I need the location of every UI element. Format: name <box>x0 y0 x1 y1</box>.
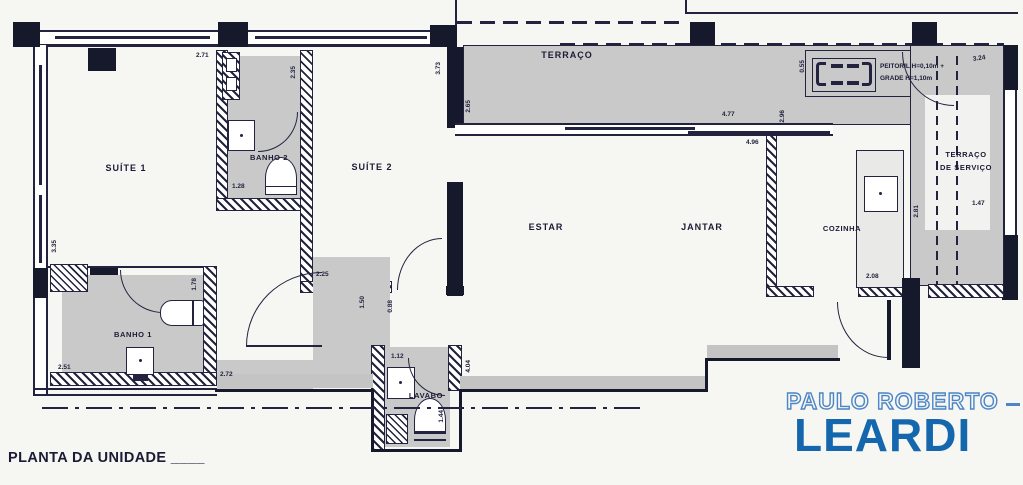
room-label-banho1: BANHO 1 <box>114 330 152 339</box>
dim-suite1-left: 3.35 <box>52 240 59 253</box>
logo-text-bottom: LEARDI <box>794 408 971 462</box>
column-east-upper <box>1002 45 1018 90</box>
banho2-south-wall <box>216 198 308 211</box>
suite2-door-arc <box>397 238 442 290</box>
lavabo-toilet-base2 <box>414 439 446 441</box>
column-east-lower <box>1002 235 1018 300</box>
boundary-b2 <box>371 389 374 451</box>
boundary-b5 <box>459 389 708 392</box>
wall-suite2-estar-upper <box>447 47 463 128</box>
dim-suite2-right: 3.73 <box>436 62 443 75</box>
room-label-suite2: SUÍTE 2 <box>351 162 392 172</box>
east-window-band <box>1003 90 1017 235</box>
column <box>218 22 248 47</box>
banho1-sink-pedestal <box>133 375 148 381</box>
plan-caption: PLANTA DA UNIDADE ____ <box>8 450 205 466</box>
dim-banho1-right: 1.78 <box>192 278 199 291</box>
dim-service-left: 2.81 <box>914 205 921 218</box>
dim-cozinha-bottom: 2.08 <box>866 274 879 281</box>
dim-terraco-right: 4.77 <box>722 112 735 119</box>
window-note-line2: GRADE H=1,10m <box>880 74 932 83</box>
room-label-terraco: TERRAÇO <box>541 50 593 60</box>
banho1-east-wall <box>203 266 217 386</box>
room-label-servico-2: DE SERVIÇO <box>940 163 992 172</box>
banho1-duct <box>50 264 88 292</box>
logo-dash <box>1006 403 1020 406</box>
dim-suite2-bottom: 2.25 <box>316 272 329 279</box>
hall-door-arc <box>246 272 322 346</box>
lavabo-shaft <box>386 414 408 444</box>
column <box>88 48 116 71</box>
room-label-suite1: SUÍTE 1 <box>105 163 146 173</box>
window-grade-icon <box>812 58 876 92</box>
west-window-glazing-1 <box>39 65 42 185</box>
west-window-glazing-2 <box>39 195 42 263</box>
banho1-bathtub-divider <box>192 301 194 325</box>
dim-terraco-left: 2.65 <box>466 100 473 113</box>
room-label-lavabo: LAVABO <box>409 391 443 400</box>
dim-hall-door-b: 0.88 <box>388 300 395 313</box>
room-label-jantar: JANTAR <box>681 222 723 232</box>
wall-cozinha-servico <box>902 278 920 368</box>
wall-suite2-estar-lower <box>447 182 463 296</box>
column <box>13 22 40 47</box>
upper-slab-line-top <box>685 12 1018 14</box>
north-window-glazing-2 <box>255 36 427 39</box>
cozinha-west-wall <box>766 135 777 287</box>
entry-door-arc <box>837 302 888 358</box>
dim-hall-right: 4.04 <box>466 360 473 373</box>
dim-banho1-bottom: 2.51 <box>58 365 71 372</box>
column <box>690 22 715 46</box>
cozinha-sink-drain <box>879 192 882 195</box>
banho2-east-wall <box>300 50 313 293</box>
lavabo-sink-drain <box>399 381 402 384</box>
banho2-toilet-base <box>265 186 297 195</box>
column-west-lower <box>33 268 48 298</box>
room-label-cozinha: COZINHA <box>823 224 861 233</box>
dim-hall-bottom: 2.72 <box>220 372 233 379</box>
servico-south-wall <box>928 284 1004 298</box>
room-label-servico-1: TERRAÇO <box>945 150 986 159</box>
dim-hall-door-a: 1.50 <box>360 296 367 309</box>
lavabo-toilet-base1 <box>414 432 446 434</box>
section-line <box>42 407 642 409</box>
dim-banho2-bottom: 1.28 <box>232 184 245 191</box>
north-window-glazing-1 <box>55 36 210 39</box>
dim-kitchen-window-left: 0.55 <box>800 60 807 73</box>
sliding-door-panel-2 <box>688 131 830 134</box>
sliding-door-panel-1 <box>565 127 695 130</box>
dim-service-bottom: 1.47 <box>972 201 985 208</box>
boundary-shadow-3 <box>707 345 838 359</box>
dim-estar-top: 4.96 <box>746 140 759 147</box>
suite2-door-jamb <box>446 286 464 295</box>
dim-lavabo-top: 1.12 <box>391 354 404 361</box>
projection-dashed-line-upper <box>457 21 685 24</box>
dim-banho2-right: 2.35 <box>291 66 298 79</box>
dim-suite1-top: 2.71 <box>196 53 209 60</box>
banho1-outer-wall-2 <box>33 394 217 396</box>
column <box>430 25 457 47</box>
banho1-bathtub-icon <box>160 300 204 326</box>
dim-lavabo-inner: 1.44 <box>439 410 446 423</box>
boundary-b1 <box>215 389 373 392</box>
boundary-b3 <box>371 449 462 452</box>
boundary-b6 <box>705 358 708 392</box>
cozinha-counter-strip <box>856 150 904 288</box>
window-note-line1: PEITORIL H=0,10m + <box>880 62 944 71</box>
dim-cozinha-top-left: 2.96 <box>780 110 787 123</box>
column <box>912 22 937 46</box>
banho2-sink-drain <box>240 134 243 137</box>
boundary-b7 <box>705 358 840 361</box>
boundary-shadow-1 <box>217 374 373 388</box>
suite-top-inner-line <box>48 45 450 47</box>
room-label-banho2: BANHO 2 <box>250 153 288 162</box>
cozinha-counter-left <box>766 286 814 297</box>
banho1-outer-wall-1 <box>33 388 217 390</box>
room-label-estar: ESTAR <box>529 222 564 232</box>
banho2-duct <box>222 52 240 100</box>
banho1-sink-drain <box>139 359 142 362</box>
boundary-b4 <box>459 389 462 451</box>
hall-door-leaf <box>246 345 322 347</box>
floor-plan: SUÍTE 1 BANHO 2 SUÍTE 2 TERRAÇO ESTAR JA… <box>0 0 1023 485</box>
boundary-shadow-2 <box>460 376 707 389</box>
